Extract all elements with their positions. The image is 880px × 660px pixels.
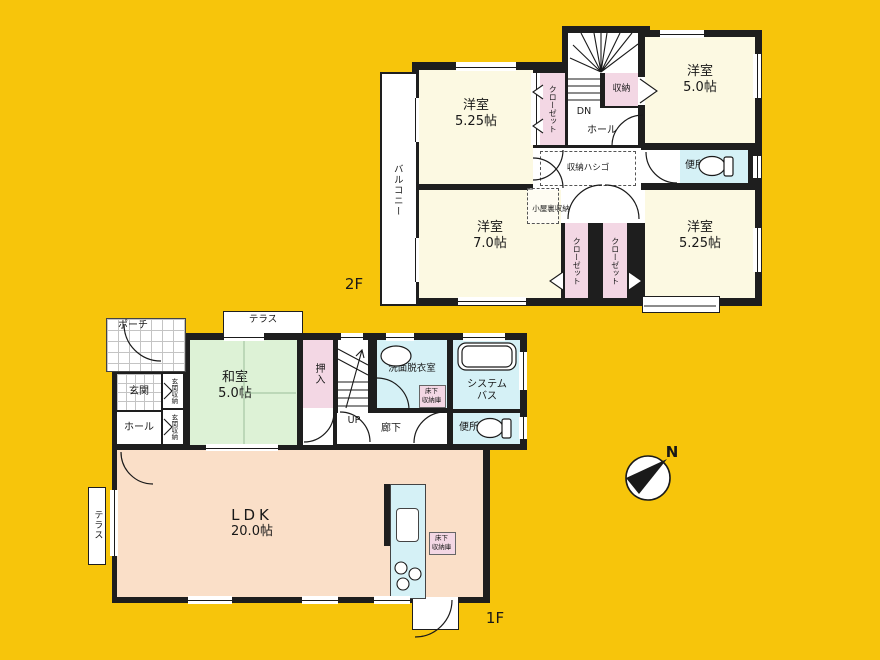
window-2f-right-b bbox=[753, 228, 761, 272]
window-stairs-top bbox=[341, 333, 363, 341]
window-2f-toilet bbox=[753, 156, 761, 178]
storage-ladder-2f-label: 収納ハシゴ bbox=[540, 151, 636, 185]
room-washitsu-label: 和室 5.0帖 bbox=[195, 368, 275, 404]
room-2f-western-525-b-label: 洋室 5.25帖 bbox=[660, 218, 740, 254]
kitchen-sink bbox=[396, 508, 419, 542]
room-2f-western-525-a-label: 洋室 5.25帖 bbox=[424, 96, 528, 132]
hall-2f-label: ホール bbox=[564, 124, 640, 138]
closet-2f-a-label: クローゼット bbox=[540, 75, 565, 143]
closet-2f-b-label: クローゼット bbox=[565, 225, 588, 296]
floorplan-canvas: バルコニー 洋室 5.25帖 クローゼット DN ホール 収納 洋室 5.0帖 … bbox=[0, 0, 880, 660]
balcony-label: バルコニー bbox=[382, 130, 412, 250]
room-ldk-label: LDK 20.0帖 bbox=[197, 503, 307, 543]
entrance-storage-b-label: 玄関収納 bbox=[163, 410, 183, 444]
underfloor-storage-ldk-label: 床下 収納庫 bbox=[429, 532, 454, 553]
window-washitsu-terrace bbox=[224, 333, 264, 341]
window-washroom-top bbox=[386, 333, 414, 341]
toilet-1f-label: 便所 bbox=[455, 420, 483, 436]
compass-icon bbox=[626, 456, 670, 500]
window-ldk-bottom-b bbox=[302, 596, 338, 604]
window-ldk-bottom-c bbox=[374, 596, 410, 604]
door-area-washitsu-corridor bbox=[303, 408, 333, 445]
room-2f-western-50-label: 洋室 5.0帖 bbox=[660, 62, 740, 98]
stairs-2f-dn-label: DN bbox=[568, 105, 600, 118]
corridor-1f-label: 廊下 bbox=[374, 422, 408, 436]
window-2f-balcony-a bbox=[411, 98, 419, 142]
terrace-top-label: テラス bbox=[223, 312, 303, 328]
washroom-label: 洗面脱衣室 bbox=[377, 362, 447, 375]
sliding-door-2f-closet-a bbox=[531, 73, 540, 145]
room-2f-western-70-label: 洋室 7.0帖 bbox=[440, 218, 540, 254]
storage-2f-label: 収納 bbox=[605, 73, 638, 106]
compass-north-label: N bbox=[662, 443, 682, 461]
window-toilet-1f-right bbox=[519, 417, 527, 439]
porch-label: ポーチ bbox=[108, 319, 158, 332]
door-area-2f-toilet bbox=[641, 150, 680, 183]
window-bath-top bbox=[463, 333, 505, 341]
toilet-2f-label: 便所 bbox=[681, 158, 709, 174]
hall-1f-label: ホール bbox=[117, 412, 161, 444]
window-2f-balcony-b bbox=[411, 238, 419, 282]
window-2f-top-left bbox=[456, 62, 516, 71]
window-ldk-bottom-a bbox=[188, 596, 232, 604]
stairs-up-label: UP bbox=[340, 414, 368, 427]
window-ldk-terrace bbox=[110, 490, 118, 556]
floor2-label: 2F bbox=[338, 274, 370, 294]
attic-storage-label: 小屋裏収納 bbox=[524, 202, 578, 214]
underfloor-storage-washroom-label: 床下 収納庫 bbox=[419, 385, 444, 406]
system-bath-label: システム バス bbox=[456, 377, 518, 405]
closet-2f-c-label: クローゼット bbox=[603, 225, 627, 296]
entrance-label: 玄関 bbox=[117, 374, 161, 410]
oshiire-label: 押入 bbox=[303, 342, 333, 406]
stairs-1f bbox=[338, 340, 368, 413]
entrance-storage-a-label: 玄関収納 bbox=[163, 374, 183, 408]
bay-window-2f bbox=[642, 296, 720, 313]
stairs-2f-fan bbox=[568, 33, 638, 73]
window-2f-top-right bbox=[660, 30, 704, 38]
sliding-door-washitsu-ldk bbox=[206, 444, 278, 451]
floor1-label: 1F bbox=[478, 608, 512, 628]
window-bath-right bbox=[519, 352, 527, 390]
window-2f-bottom bbox=[458, 297, 526, 305]
terrace-left-label: テラス bbox=[88, 489, 106, 561]
window-2f-right-a bbox=[753, 54, 761, 98]
door-gap-2f-storage bbox=[638, 77, 645, 105]
rear-door-step bbox=[412, 597, 459, 630]
